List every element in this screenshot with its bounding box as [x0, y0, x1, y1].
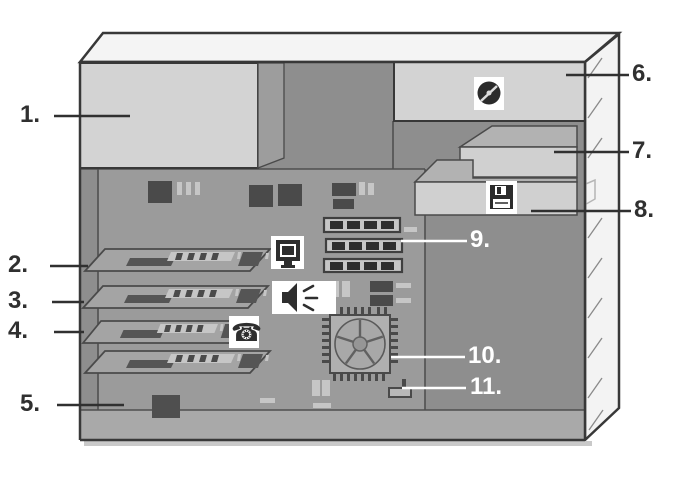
cpu-chip: [322, 307, 398, 381]
expansion-card-extra: [85, 351, 270, 373]
expansion-card-modem: [83, 321, 250, 343]
case-shadow: [84, 441, 592, 446]
case-illustration: ☎: [0, 0, 689, 491]
callout-label-7: 7.: [632, 138, 652, 164]
callout-label-9: 9.: [470, 227, 490, 253]
callout-label-1: 1.: [20, 102, 40, 128]
cpu-fan-icon: [335, 319, 385, 369]
callout-label-10: 10.: [468, 343, 501, 369]
ram-slot-1: [324, 218, 400, 232]
callout-label-11: 11.: [470, 374, 502, 400]
speaker-icon: [272, 281, 336, 314]
callout-label-8: 8.: [634, 197, 654, 223]
case-top-face: [80, 33, 619, 62]
svg-text:☎: ☎: [231, 318, 262, 347]
ram-slot-2: [326, 239, 402, 252]
floppy-disk-icon: [486, 181, 517, 214]
cd-disc-icon: [474, 77, 504, 110]
callout-label-2: 2.: [8, 252, 28, 278]
callout-label-3: 3.: [8, 288, 28, 314]
floor-chip: [152, 395, 180, 418]
computer-case-cutaway-diagram: ☎ 1. 2. 3. 4. 5. 6. 7. 8. 9. 10. 11: [0, 0, 689, 491]
ram-slot-3: [324, 259, 402, 272]
telephone-icon: ☎: [229, 316, 262, 348]
callout-label-5: 5.: [20, 391, 40, 417]
callout-label-6: 6.: [632, 61, 652, 87]
monitor-icon: [271, 236, 304, 269]
expansion-card-video: [85, 249, 270, 271]
callout-label-4: 4.: [8, 318, 28, 344]
expansion-card-sound: [83, 286, 268, 308]
